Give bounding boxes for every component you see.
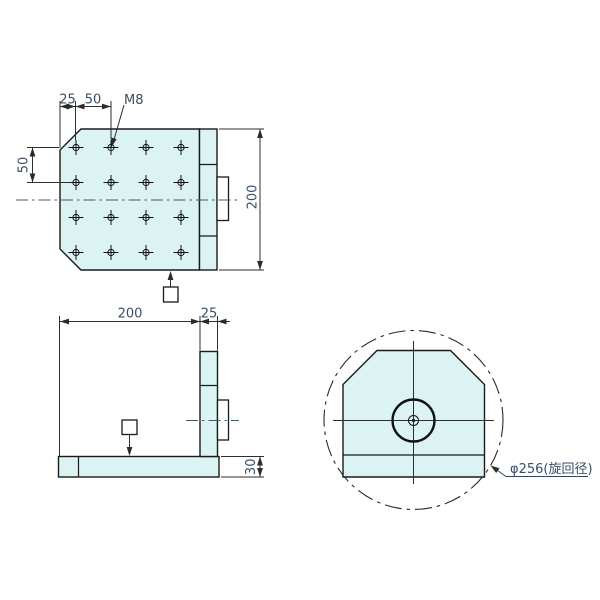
label-swing-diameter: φ256(旋回径) <box>510 462 593 477</box>
rotated-top-view: φ256(旋回径) <box>324 331 593 510</box>
side-view: 200 25 30 <box>59 307 265 478</box>
technical-drawing: 25 50 M8 50 200 <box>0 0 600 600</box>
dim-25-edge-offset: 25 <box>59 93 76 108</box>
drawing-page: 25 50 M8 50 200 <box>0 0 600 600</box>
knob-body-side <box>122 420 137 435</box>
clamp-knob-side <box>122 420 137 456</box>
knob-body <box>164 287 179 302</box>
dim-50-hole-pitch: 50 <box>85 93 102 108</box>
label-m8: M8 <box>124 93 144 108</box>
base-plate <box>59 457 220 478</box>
dim-25-thickness: 25 <box>201 307 218 322</box>
upright-plate <box>200 352 218 457</box>
front-view: 25 50 M8 50 200 <box>16 93 264 303</box>
front-clamp-tab <box>217 177 229 221</box>
dim-50-vertical-pitch: 50 <box>17 157 32 174</box>
dimension-base-height: 30 <box>221 457 264 478</box>
center-dot <box>412 419 415 422</box>
dim-200-height: 200 <box>246 185 261 210</box>
dim-30-base: 30 <box>244 459 259 476</box>
swing-diameter-callout: φ256(旋回径) <box>489 462 593 477</box>
clamp-knob-front <box>164 271 179 302</box>
dim-200-depth: 200 <box>118 307 143 322</box>
